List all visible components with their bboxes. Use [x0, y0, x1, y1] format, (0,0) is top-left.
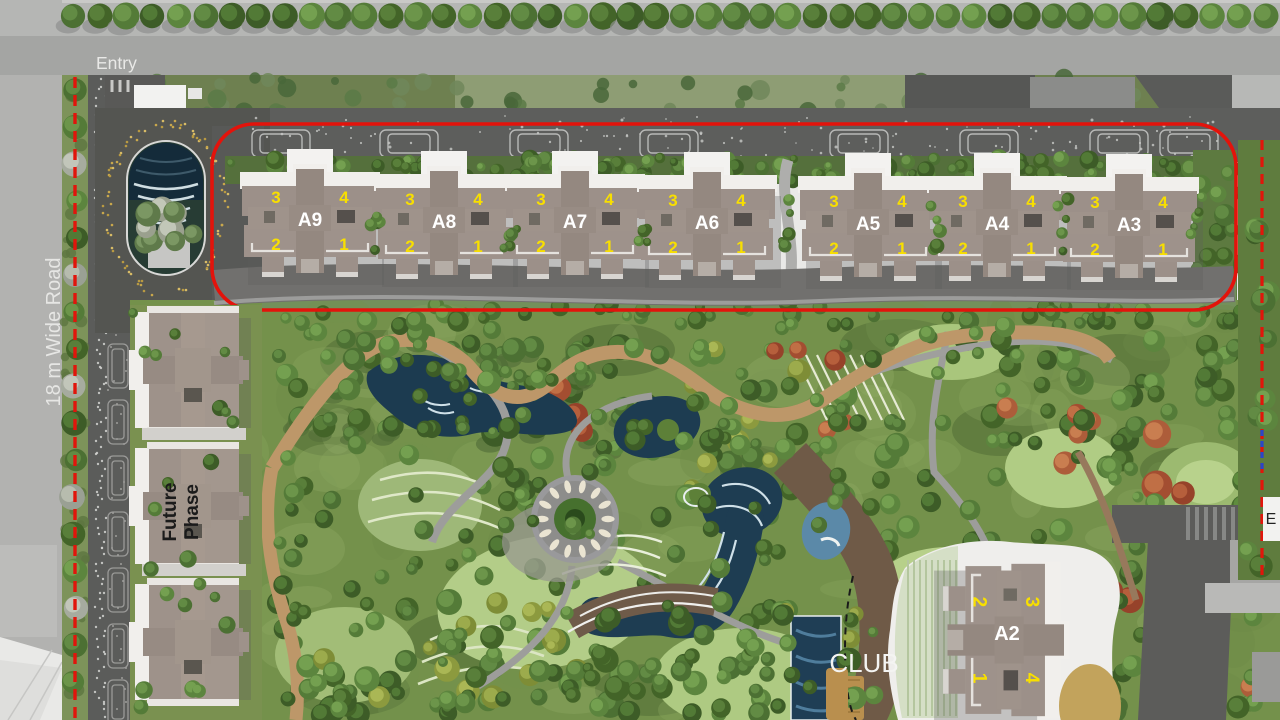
- svg-text:3: 3: [958, 192, 967, 211]
- svg-text:4: 4: [1158, 193, 1168, 212]
- svg-text:1: 1: [473, 237, 482, 256]
- svg-text:3: 3: [829, 192, 838, 211]
- svg-text:2: 2: [405, 237, 414, 256]
- svg-text:1: 1: [339, 235, 348, 254]
- svg-text:3: 3: [271, 188, 280, 207]
- svg-text:FuturePhase: FuturePhase: [160, 482, 203, 541]
- svg-text:3: 3: [405, 190, 414, 209]
- svg-text:A7: A7: [563, 212, 587, 233]
- svg-text:A8: A8: [432, 212, 456, 233]
- svg-text:1: 1: [1158, 240, 1167, 259]
- svg-text:4: 4: [1021, 673, 1042, 684]
- svg-text:4: 4: [736, 191, 746, 210]
- svg-text:2: 2: [668, 238, 677, 257]
- svg-text:A4: A4: [985, 214, 1010, 235]
- svg-text:4: 4: [897, 192, 907, 211]
- svg-text:A3: A3: [1117, 215, 1141, 236]
- svg-text:4: 4: [1026, 192, 1036, 211]
- svg-text:A2: A2: [994, 623, 1020, 645]
- svg-text:4: 4: [604, 190, 614, 209]
- svg-text:1: 1: [897, 239, 906, 258]
- svg-text:1: 1: [736, 238, 745, 257]
- svg-text:3: 3: [1021, 597, 1042, 608]
- svg-text:2: 2: [271, 235, 280, 254]
- svg-text:3: 3: [536, 190, 545, 209]
- svg-text:CLUB: CLUB: [829, 648, 898, 678]
- svg-text:E: E: [1266, 511, 1277, 528]
- svg-text:A5: A5: [856, 214, 881, 235]
- svg-text:2: 2: [536, 237, 545, 256]
- svg-text:1: 1: [968, 673, 989, 684]
- svg-text:2: 2: [1090, 240, 1099, 259]
- svg-text:2: 2: [829, 239, 838, 258]
- svg-text:Entry: Entry: [96, 53, 137, 73]
- svg-text:1: 1: [604, 237, 613, 256]
- svg-text:2: 2: [958, 239, 967, 258]
- svg-text:3: 3: [1090, 193, 1099, 212]
- svg-text:1: 1: [1026, 239, 1035, 258]
- svg-text:A6: A6: [695, 213, 719, 234]
- svg-text:A9: A9: [298, 210, 322, 231]
- svg-text:4: 4: [339, 188, 349, 207]
- svg-text:2: 2: [968, 597, 989, 608]
- svg-text:4: 4: [473, 190, 483, 209]
- svg-text:3: 3: [668, 191, 677, 210]
